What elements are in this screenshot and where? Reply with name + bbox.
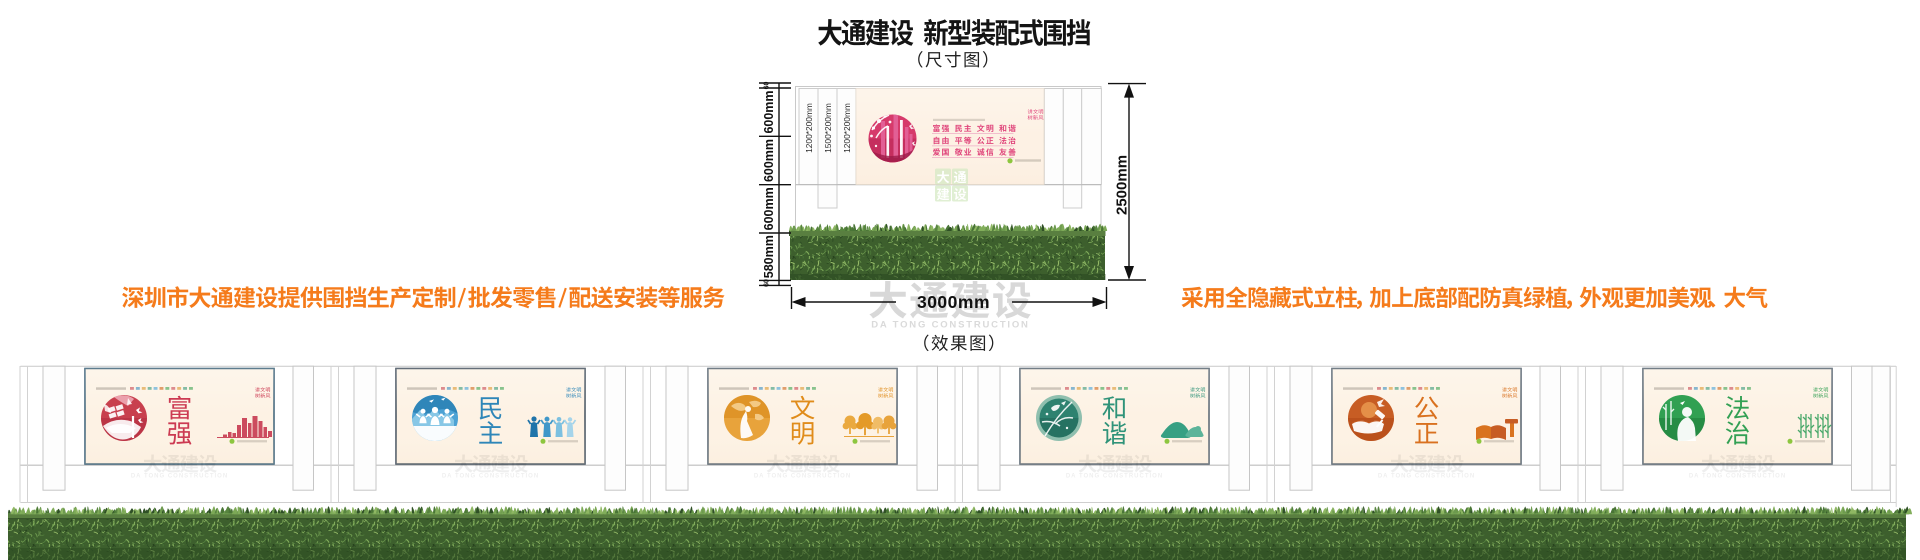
- svg-text:DA TONG CONSTRUCTION: DA TONG CONSTRUCTION: [754, 474, 851, 480]
- svg-text:2500mm: 2500mm: [1114, 155, 1131, 215]
- svg-text:DA TONG CONSTRUCTION: DA TONG CONSTRUCTION: [1066, 474, 1163, 480]
- svg-text:DA TONG CONSTRUCTION: DA TONG CONSTRUCTION: [1378, 474, 1475, 480]
- svg-text:DA TONG CONSTRUCTION: DA TONG CONSTRUCTION: [131, 474, 228, 480]
- svg-text:60: 60: [764, 279, 771, 287]
- svg-text:580mm: 580mm: [762, 235, 776, 278]
- svg-text:60: 60: [764, 82, 771, 90]
- svg-text:1500*200mm: 1500*200mm: [823, 103, 833, 153]
- svg-text:DA TONG CONSTRUCTION: DA TONG CONSTRUCTION: [442, 474, 539, 480]
- svg-text:DA TONG CONSTRUCTION: DA TONG CONSTRUCTION: [871, 320, 1029, 331]
- svg-text:600mm: 600mm: [762, 139, 776, 182]
- svg-text:1200*200mm: 1200*200mm: [804, 103, 814, 153]
- svg-text:600mm: 600mm: [762, 187, 776, 230]
- svg-text:1200*200mm: 1200*200mm: [842, 103, 852, 153]
- svg-text:600mm: 600mm: [762, 90, 776, 133]
- svg-text:DA TONG CONSTRUCTION: DA TONG CONSTRUCTION: [1689, 474, 1786, 480]
- svg-text:3000mm: 3000mm: [917, 292, 990, 312]
